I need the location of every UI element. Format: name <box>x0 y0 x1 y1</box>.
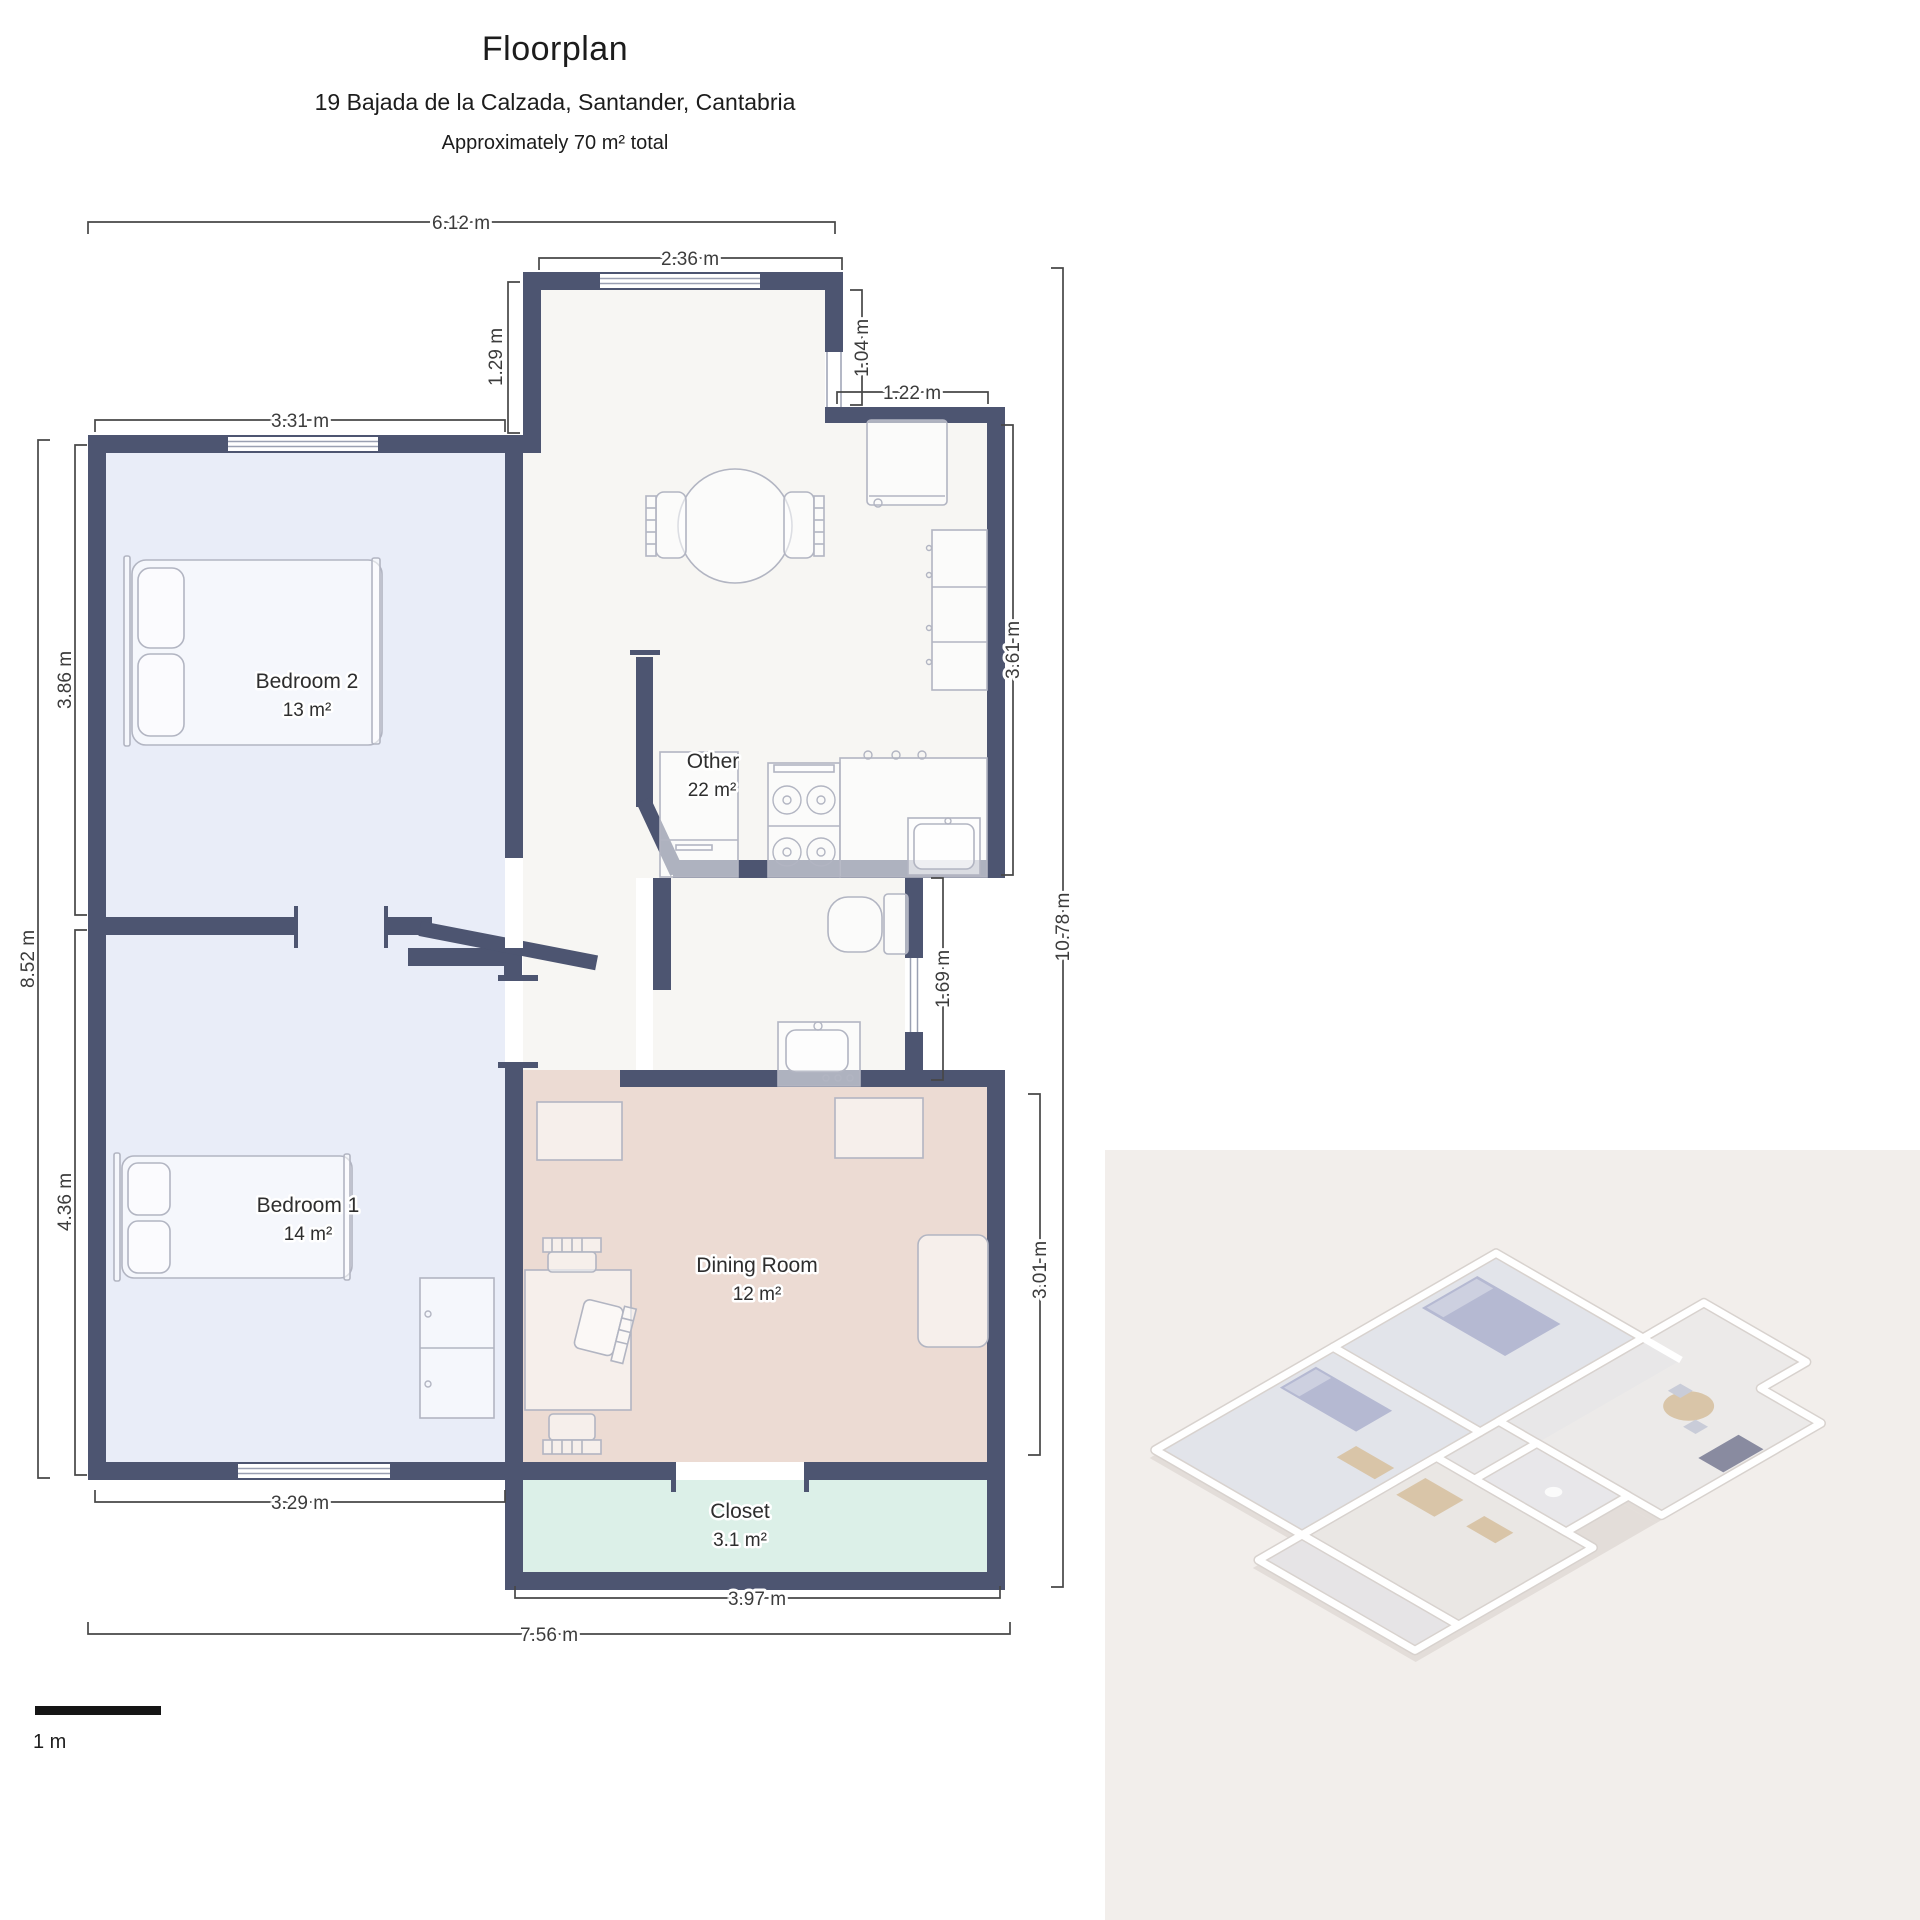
stove-icon <box>768 763 840 877</box>
room-area-other: 22 m² <box>688 780 737 801</box>
floorplan-page: { "header": { "title": "Floorplan", "add… <box>0 0 1920 1920</box>
toilet-icon <box>828 894 908 954</box>
opening-kitchen-right <box>825 352 843 407</box>
room-label-other: Other <box>687 750 740 773</box>
dim-1-69: 1.69 m <box>933 950 954 1008</box>
floorplan-3d-panel <box>1102 1150 1920 1920</box>
floorplan-canvas: Bedroom 2 13 m² Bedroom 1 14 m² Other 22… <box>0 0 1920 1920</box>
bathroom-sink-icon <box>778 1022 860 1086</box>
opening-corridor-lower <box>505 981 523 1062</box>
dim-bedroom1-height: 4.36 m <box>55 1173 76 1231</box>
room-label-dining: Dining Room <box>696 1254 817 1277</box>
dim-1-04: 1.04 m <box>852 319 873 377</box>
dim-bottom-total: 7.56 m <box>520 1625 578 1646</box>
dining-chair-top <box>543 1238 601 1272</box>
sofa-icon <box>918 1235 988 1347</box>
room-area-bedroom1: 14 m² <box>284 1224 333 1245</box>
single-bed-icon <box>114 1153 352 1281</box>
sink-counter-icon <box>840 751 987 877</box>
dim-bedroom1-width: 3.29 m <box>271 1493 329 1514</box>
room-area-closet: 3.1 m² <box>713 1530 767 1551</box>
opening-corridor-upper <box>505 858 523 948</box>
dresser-icon <box>420 1278 494 1418</box>
floorplan-2d: Bedroom 2 13 m² Bedroom 1 14 m² Other 22… <box>18 213 1074 1753</box>
scale-bar: 1 m <box>33 1706 161 1753</box>
opening-closet <box>676 1462 804 1480</box>
window-bedroom1 <box>238 1464 390 1478</box>
closet-floor <box>523 1480 987 1572</box>
corridor-floor <box>523 453 636 1080</box>
sideboard-icon <box>537 1102 622 1160</box>
room-label-bedroom2: Bedroom 2 <box>256 670 359 693</box>
dim-closet-width: 3.97 m <box>728 1589 786 1610</box>
dim-bedroom2-height: 3.86 m <box>55 651 76 709</box>
dim-1-29: 1.29 m <box>486 328 507 386</box>
room-label-closet: Closet <box>710 1500 770 1523</box>
window-bathroom <box>905 958 923 1032</box>
dim-kitchen-height: 3.61 m <box>1003 621 1024 679</box>
dim-top-total: 6.12 m <box>432 213 490 234</box>
room-area-bedroom2: 13 m² <box>283 700 332 721</box>
dim-left-total: 8.52 m <box>18 930 39 988</box>
dining-chair-bottom <box>543 1414 601 1454</box>
double-bed-icon <box>124 556 382 746</box>
dim-bedroom2-width: 3.31 m <box>271 411 329 432</box>
window-bedroom2 <box>228 437 378 451</box>
room-area-dining: 12 m² <box>733 1284 782 1305</box>
dim-1-22: 1.22 m <box>883 383 941 404</box>
fridge-icon <box>867 420 947 507</box>
scale-bar-label: 1 m <box>33 1731 66 1753</box>
side-table-icon <box>835 1098 923 1158</box>
room-label-bedroom1: Bedroom 1 <box>257 1194 360 1217</box>
scale-bar-line <box>35 1706 161 1715</box>
kitchen-cabinet-icon <box>927 530 988 690</box>
dim-kitchen-top: 2.36 m <box>661 249 719 270</box>
dim-right-total: 10.78 m <box>1053 893 1074 962</box>
window-kitchen <box>600 274 760 288</box>
dim-dining-height: 3.01 m <box>1030 1241 1051 1299</box>
